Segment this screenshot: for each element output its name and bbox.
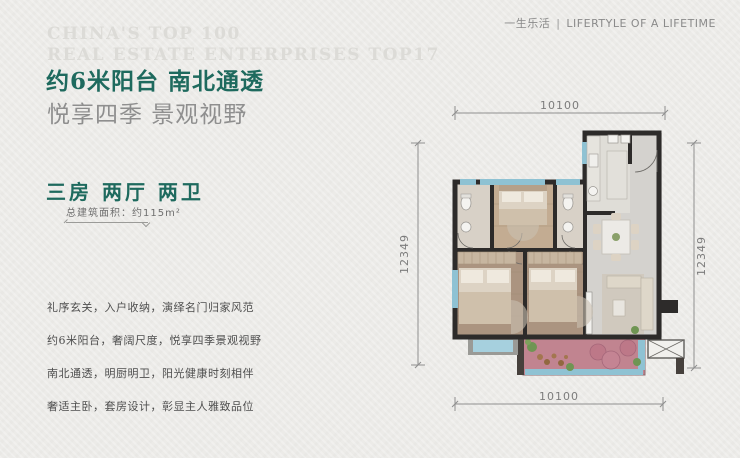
area-label: 总建筑面积：约115m² xyxy=(66,204,181,219)
pebble xyxy=(552,354,557,359)
ac-wall xyxy=(676,358,684,374)
chair xyxy=(611,254,621,261)
sofa xyxy=(641,278,653,330)
pillow xyxy=(524,192,543,202)
rooms-title: 三房 两厅 两卫 xyxy=(46,176,204,205)
ottoman xyxy=(602,351,620,369)
dim-label-top: 10100 xyxy=(540,99,580,112)
headline-primary: 约6米阳台 南北通透 xyxy=(46,62,264,96)
bed-blanket xyxy=(499,209,547,225)
room-bathroom-2 xyxy=(555,182,585,250)
window-glass xyxy=(473,340,513,352)
window xyxy=(452,270,458,308)
plant-icon xyxy=(633,358,641,366)
feature-item: 约6米阳台，奢阔尺度，悦享四季景观视野 xyxy=(47,335,262,346)
poster: 一生乐活 | LIFERTYLE OF A LIFETIME CHINA'S T… xyxy=(0,0,740,458)
toilet-tank xyxy=(563,194,573,198)
chair xyxy=(593,224,601,234)
plant-icon xyxy=(631,326,639,334)
window xyxy=(556,179,580,185)
stove-icon xyxy=(589,154,598,167)
feature-item: 南北通透，明厨明卫，阳光健康时刻相伴 xyxy=(47,368,262,379)
pillow xyxy=(502,192,521,202)
watermark-line1: CHINA'S TOP 100 xyxy=(47,24,440,45)
floorplan: 10100 10100 12349 12349 xyxy=(395,96,720,420)
bed-headboard xyxy=(499,185,547,191)
pillow xyxy=(555,270,575,282)
feature-item: 奢适主卧，套房设计，彰显主人雅致品位 xyxy=(47,401,262,412)
coffee-table xyxy=(613,300,625,316)
balcony-window-side xyxy=(638,340,645,370)
chair xyxy=(611,213,621,220)
headline-secondary: 悦享四季 景观视野 xyxy=(47,95,247,129)
washbasin-icon xyxy=(563,222,573,232)
window xyxy=(460,179,476,185)
plant-icon xyxy=(525,339,531,345)
chair xyxy=(631,224,639,234)
dim-label-left: 12349 xyxy=(398,234,411,274)
sofa xyxy=(607,276,641,288)
ottoman xyxy=(620,340,636,356)
dim-label-bottom: 10100 xyxy=(539,390,579,403)
brand-cn: 一生乐活 xyxy=(504,15,550,31)
feature-list: 礼序玄关，入户收纳，演绎名门归家风范 约6米阳台，奢阔尺度，悦享四季景观视野 南… xyxy=(47,302,262,434)
bed-blanket xyxy=(459,292,511,324)
balcony xyxy=(517,337,645,375)
pebble xyxy=(558,360,564,366)
brand-divider: | xyxy=(556,17,560,30)
plant-icon xyxy=(566,363,574,371)
spec-divider-line xyxy=(66,222,148,223)
watermark: CHINA'S TOP 100 REAL ESTATE ENTERPRISES … xyxy=(47,24,440,66)
brand-header: 一生乐活 | LIFERTYLE OF A LIFETIME xyxy=(504,15,716,31)
washbasin-icon xyxy=(461,222,471,232)
window xyxy=(480,179,545,185)
balcony-window-band xyxy=(525,369,643,375)
feature-item: 礼序玄关，入户收纳，演绎名门归家风范 xyxy=(47,302,262,313)
balcony-left-wall xyxy=(517,337,524,375)
dim-label-right: 12349 xyxy=(695,236,708,276)
pebble xyxy=(544,359,550,365)
pillow xyxy=(531,270,551,282)
toilet-tank xyxy=(461,194,471,198)
room-bathroom-1 xyxy=(455,182,492,250)
appliance-icon xyxy=(608,135,618,143)
appliance-icon xyxy=(621,135,630,143)
window-bay xyxy=(468,337,518,355)
ac-platform xyxy=(648,340,684,374)
wardrobe xyxy=(458,252,516,264)
bed-blanket xyxy=(529,290,577,322)
kitchen-island xyxy=(607,151,627,199)
wall-jog xyxy=(657,300,678,313)
chair xyxy=(631,240,639,250)
pillow xyxy=(487,270,509,283)
brand-en: LIFERTYLE OF A LIFETIME xyxy=(566,17,716,30)
pillow xyxy=(461,270,483,283)
pebble xyxy=(537,354,543,360)
table-plant-icon xyxy=(612,233,620,241)
pebble xyxy=(564,355,568,359)
dim-line-left xyxy=(411,140,425,368)
sink-icon xyxy=(589,187,598,196)
chair xyxy=(593,240,601,250)
